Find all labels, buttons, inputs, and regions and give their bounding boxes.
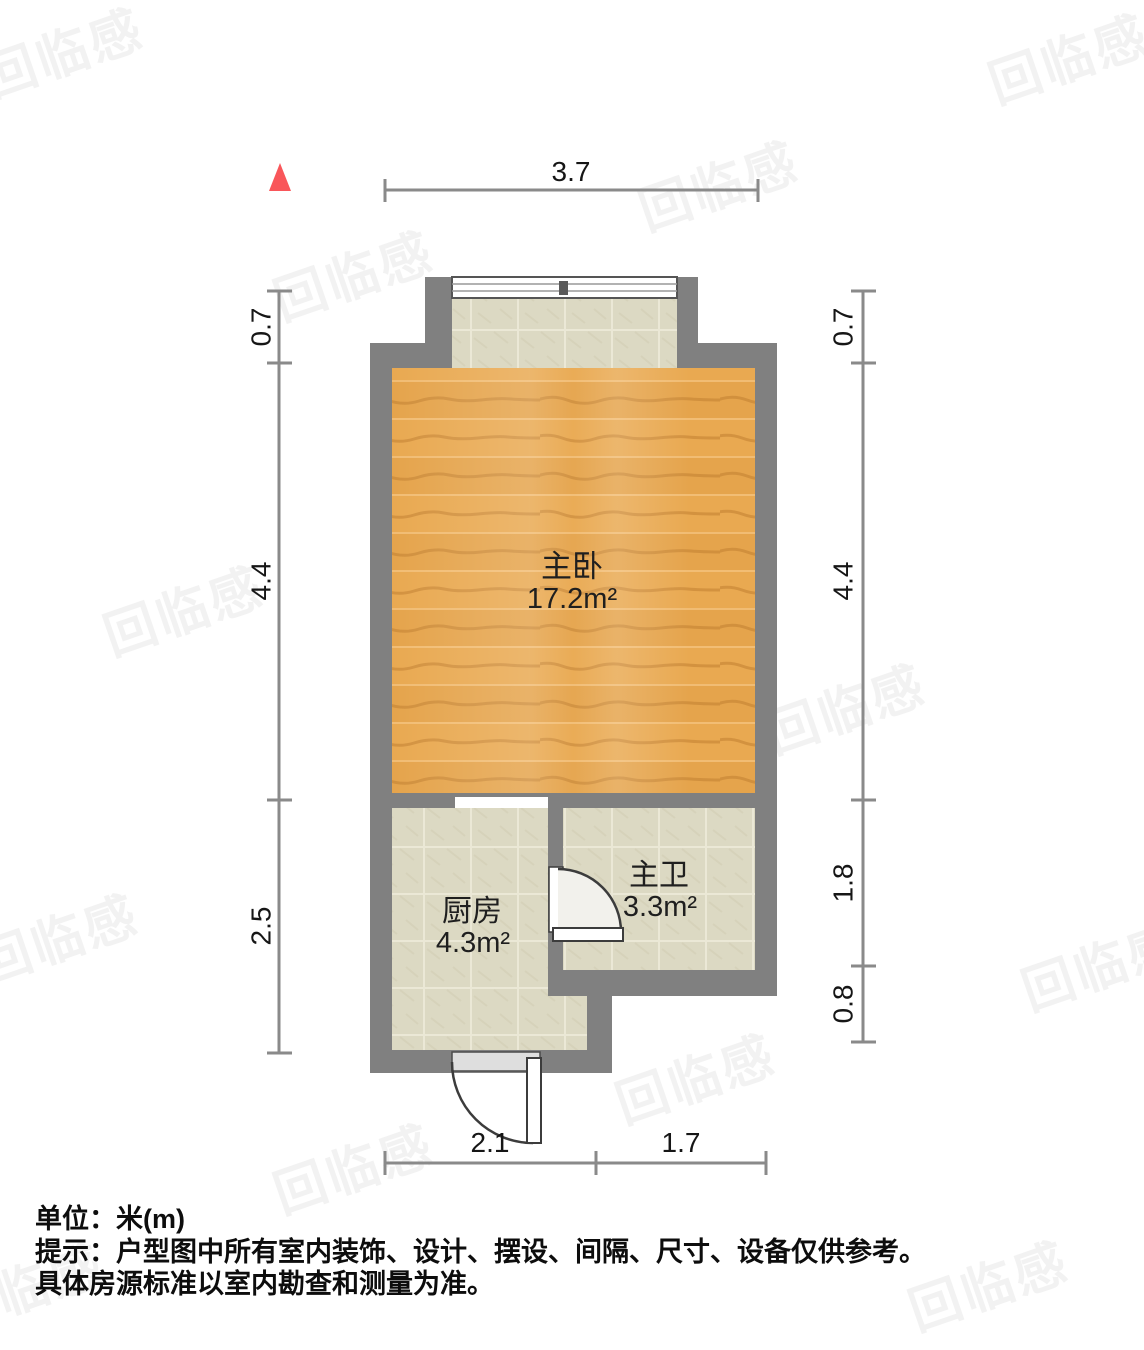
dim-label-right-0: 0.7	[828, 308, 859, 347]
kitchen-name-label: 厨房	[442, 895, 502, 928]
bedroom-name-label: 主卧	[541, 549, 603, 584]
wall-balcony-right	[677, 277, 698, 368]
north-arrow-icon	[269, 163, 291, 191]
bathroom-door-leaf	[553, 928, 623, 941]
balcony-window	[452, 277, 677, 298]
dim-label-right-1: 4.4	[828, 562, 859, 601]
wall-passage-lintel	[455, 793, 552, 797]
bathroom-area-label: 3.3m²	[623, 891, 697, 923]
dimension-bottom	[385, 1151, 766, 1175]
balcony-floor	[452, 298, 677, 368]
dim-label-left-0: 0.7	[246, 308, 277, 347]
wall-right	[755, 343, 777, 996]
dim-label-left-2: 2.5	[246, 907, 277, 946]
floorplan-page: 回临感 回临感 回临感 回临感 回临感 回临感 回临感 回临感 回临感 回临感 …	[0, 0, 1144, 1350]
wall-balcony-left	[425, 277, 452, 368]
wall-left	[370, 343, 392, 1073]
dimension-right	[851, 291, 876, 1042]
bedroom-area-label: 17.2m²	[527, 583, 618, 615]
dim-label-bottom-left: 2.1	[471, 1127, 510, 1158]
dim-label-bottom-right: 1.7	[662, 1127, 701, 1158]
dim-label-right-3: 0.8	[828, 985, 859, 1024]
wall-bathroom-bottom	[548, 970, 777, 996]
footer-disclaimer-line1: 提示：户型图中所有室内装饰、设计、摆设、间隔、尺寸、设备仅供参考。	[35, 1238, 926, 1268]
dim-label-right-2: 1.8	[828, 864, 859, 903]
dim-label-left-1: 4.4	[246, 562, 277, 601]
footer-disclaimer-line2: 具体房源标准以室内勘查和测量为准。	[35, 1270, 494, 1300]
wall-bedroom-bottom-right	[552, 793, 755, 808]
kitchen-area-label: 4.3m²	[436, 927, 510, 959]
floorplan-drawing: 主卧 17.2m² 厨房 4.3m² 主卫 3.3m² 3.7 2.1 1.7	[0, 0, 1144, 1350]
wall-bedroom-bottom-left	[392, 793, 455, 808]
entry-door-leaf	[527, 1058, 541, 1143]
dim-label-top: 3.7	[552, 156, 591, 187]
bathroom-name-label: 主卫	[629, 859, 689, 892]
footer-unit-note: 单位：米(m)	[35, 1205, 185, 1235]
window-center-post	[559, 281, 568, 295]
